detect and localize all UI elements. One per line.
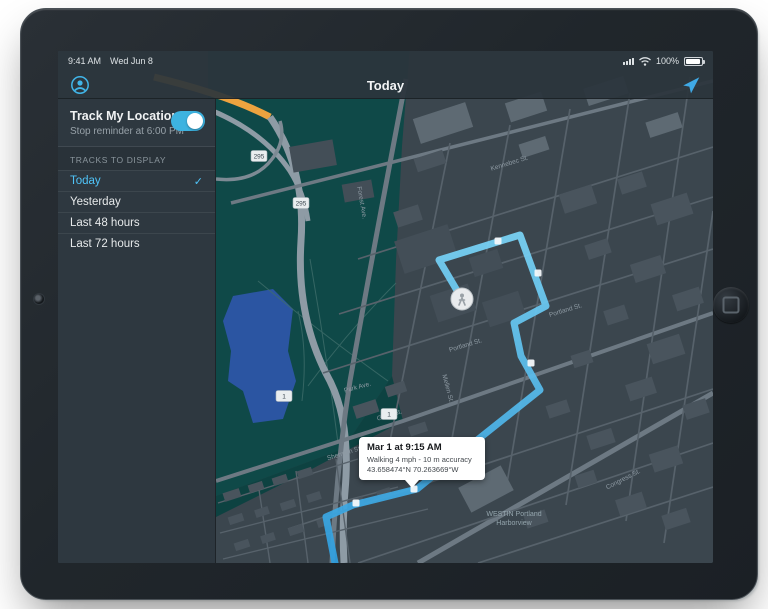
- location-arrow-icon[interactable]: [681, 75, 701, 95]
- callout-detail: Walking 4 mph - 10 m accuracy: [367, 455, 477, 464]
- screen: Portland St.Portland St.Sherman St.Grant…: [58, 51, 713, 563]
- cellular-signal-icon: [623, 57, 634, 65]
- callout-title: Mar 1 at 9:15 AM: [367, 442, 477, 453]
- toggle-knob: [187, 113, 203, 129]
- current-location-marker[interactable]: [451, 288, 473, 310]
- front-camera: [33, 293, 45, 305]
- poi-label-westin: WESTIN Portland Harborview: [456, 511, 572, 528]
- svg-text:1: 1: [282, 393, 286, 400]
- track-location-toggle[interactable]: [171, 111, 205, 131]
- status-date: Wed Jun 8: [110, 56, 153, 66]
- sidebar-item-today[interactable]: Today✓: [58, 170, 215, 191]
- svg-text:295: 295: [296, 200, 307, 207]
- sidebar-track-list: Today✓YesterdayLast 48 hoursLast 72 hour…: [58, 170, 215, 254]
- sidebar: Track My Location Stop reminder at 6:00 …: [58, 99, 216, 563]
- ipad-device: Portland St.Portland St.Sherman St.Grant…: [20, 8, 758, 600]
- sidebar-item-label: Last 72 hours: [70, 238, 140, 250]
- battery-icon: [684, 57, 703, 66]
- callout-coordinates: 43.658474°N 70.263669°W: [367, 465, 477, 474]
- svg-text:1: 1: [387, 411, 391, 418]
- sidebar-item-label: Last 48 hours: [70, 217, 140, 229]
- page-title: Today: [58, 78, 713, 93]
- header: 9:41 AM Wed Jun 8 100%: [58, 51, 713, 99]
- nav-bar: Today: [58, 71, 713, 99]
- status-time: 9:41 AM: [68, 56, 101, 66]
- sidebar-item-label: Today: [70, 175, 101, 187]
- sidebar-item-yesterday[interactable]: Yesterday: [58, 191, 215, 212]
- poi-line2: Harborview: [456, 520, 572, 529]
- battery-percent: 100%: [656, 56, 679, 66]
- route-point-callout[interactable]: Mar 1 at 9:15 AM Walking 4 mph - 10 m ac…: [359, 437, 485, 480]
- track-my-location-section: Track My Location Stop reminder at 6:00 …: [58, 99, 215, 147]
- checkmark-icon: ✓: [194, 175, 203, 188]
- tracks-section-label: TRACKS TO DISPLAY: [58, 147, 215, 170]
- home-button[interactable]: [713, 287, 749, 323]
- poi-line1: WESTIN Portland: [456, 511, 572, 520]
- sidebar-item-last-72-hours[interactable]: Last 72 hours: [58, 233, 215, 254]
- contact-person-icon[interactable]: [70, 75, 90, 95]
- sidebar-item-label: Yesterday: [70, 196, 121, 208]
- wifi-icon: [639, 57, 651, 66]
- sidebar-item-last-48-hours[interactable]: Last 48 hours: [58, 212, 215, 233]
- svg-text:295: 295: [254, 153, 265, 160]
- status-bar: 9:41 AM Wed Jun 8 100%: [58, 51, 713, 71]
